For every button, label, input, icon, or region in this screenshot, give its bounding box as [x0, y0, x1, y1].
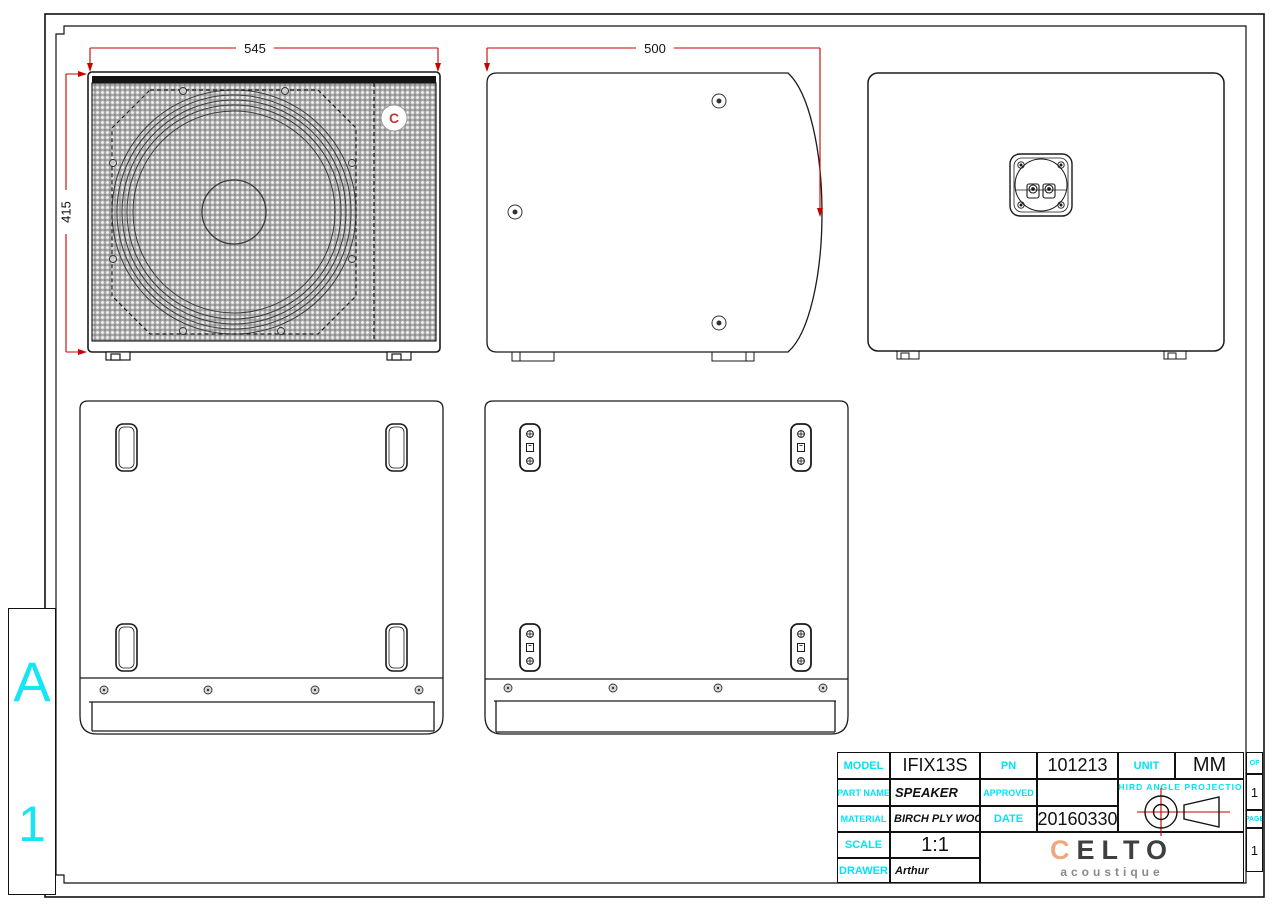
grille-logo: C	[381, 105, 407, 131]
front-top-band	[92, 76, 436, 83]
grille-logo-letter: C	[389, 110, 399, 126]
drawing-sheet: MODEL IFIX13S PN 101213 UNIT MM PART NAM…	[0, 0, 1279, 904]
third-angle-projection-symbol	[1137, 788, 1230, 836]
zone-letter: A	[13, 654, 50, 710]
dim-front-height: 415	[59, 201, 74, 223]
top-view-slots	[80, 401, 443, 734]
front-view: C	[88, 72, 440, 360]
zone-number: 1	[18, 799, 46, 849]
side-feet	[512, 352, 754, 361]
cad-drawing: C	[0, 0, 1279, 904]
dim-side-depth: 500	[644, 41, 666, 56]
side-view	[487, 73, 822, 361]
bottom-view-plates	[485, 401, 848, 734]
zone-panel: A 1	[8, 608, 56, 895]
rear-view	[868, 73, 1224, 359]
front-feet	[106, 352, 411, 360]
dim-front-width: 545	[244, 41, 266, 56]
rear-feet	[897, 351, 1186, 359]
